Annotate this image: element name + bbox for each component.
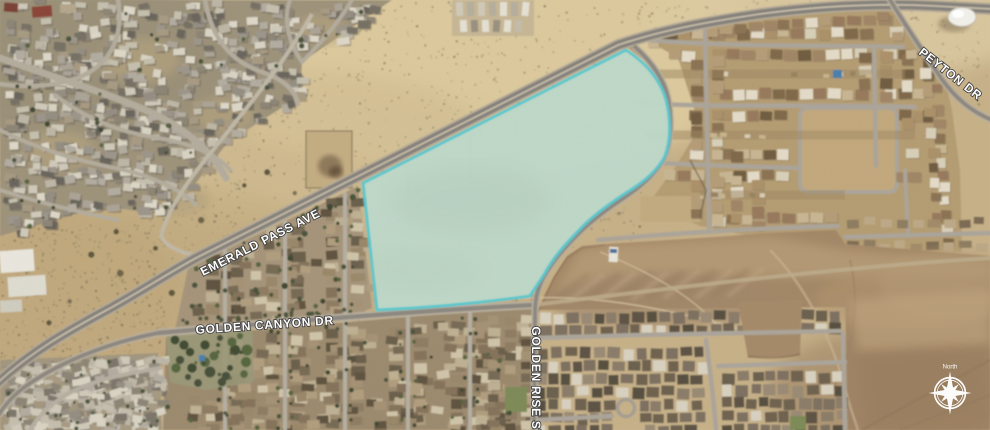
svg-text:GOLDEN RISE ST: GOLDEN RISE ST (529, 326, 543, 430)
svg-text:North: North (943, 365, 958, 371)
